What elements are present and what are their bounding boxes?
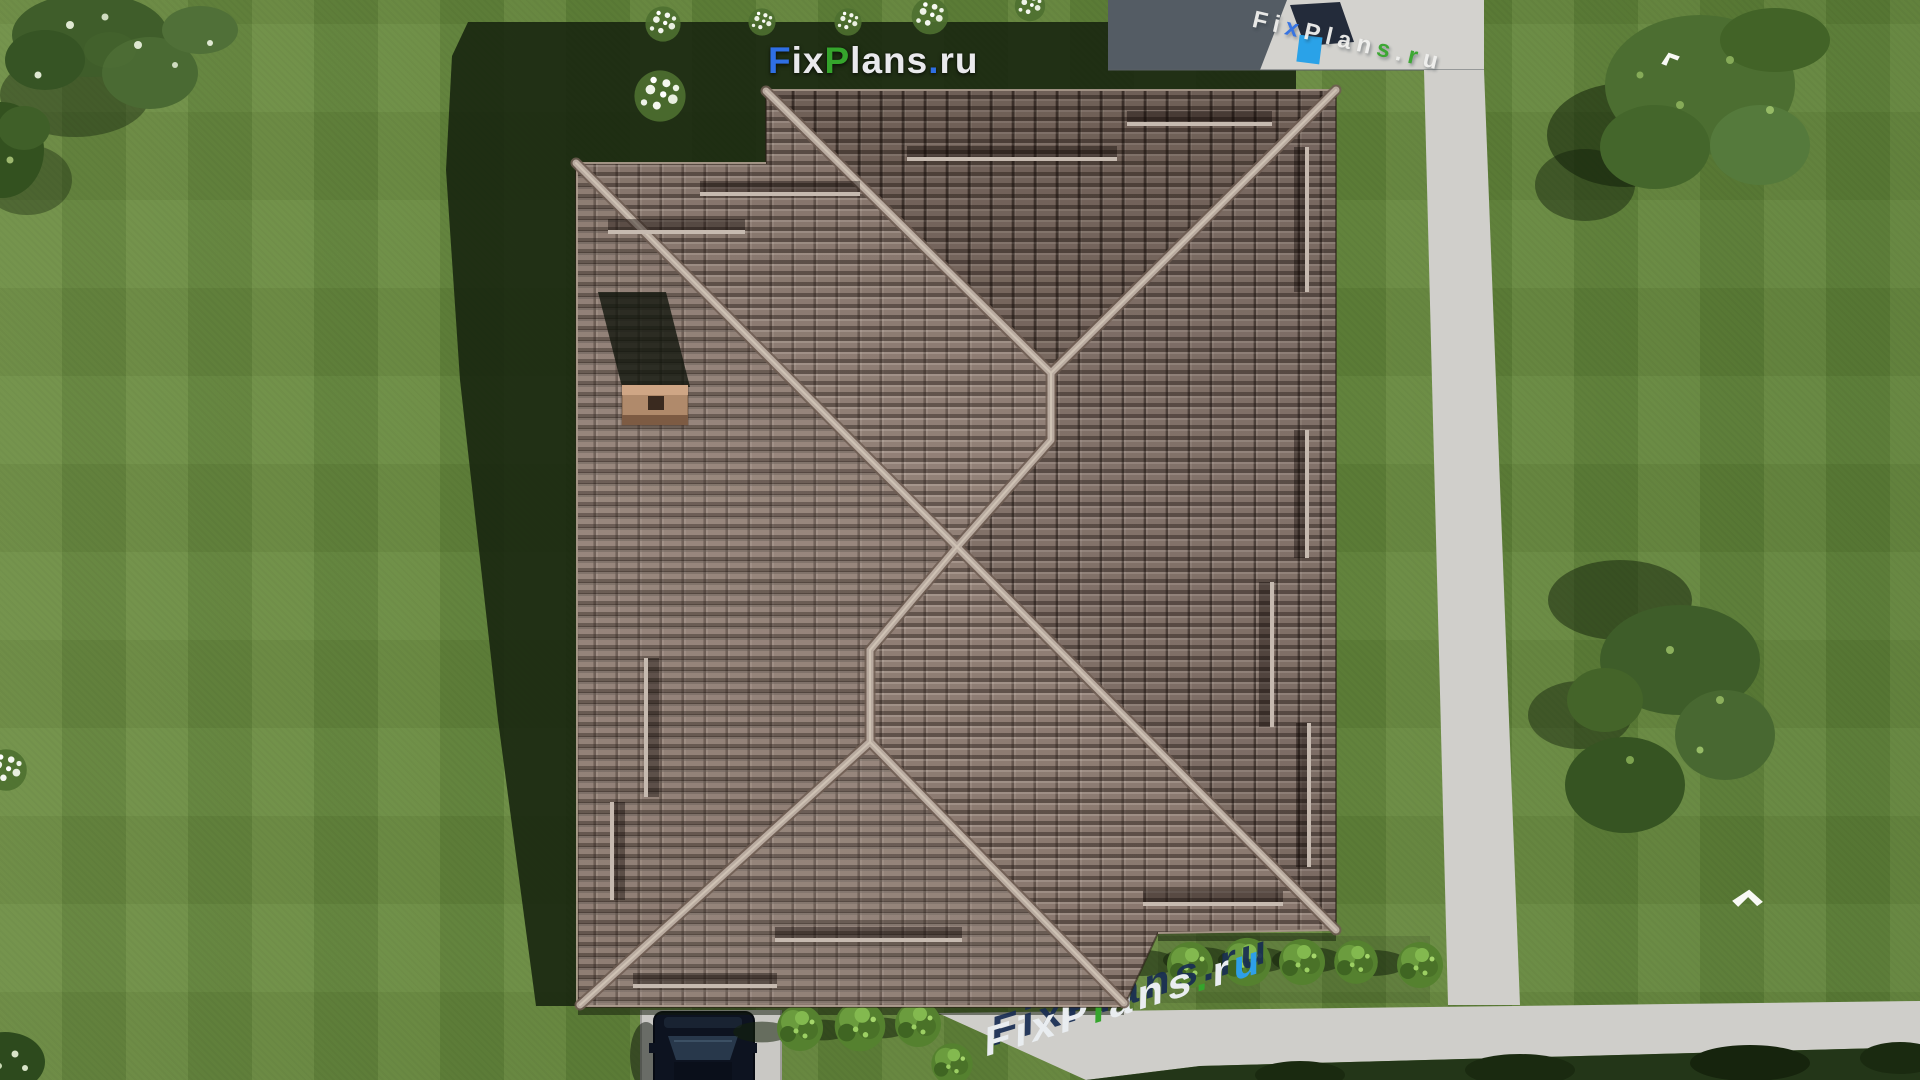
roof-detail-layer [0,0,1920,1080]
snow-guard [610,802,614,900]
watermark-letter: s [907,40,929,81]
snow-guard [633,984,777,988]
watermark-letter: n [883,40,907,81]
snow-guard [1143,902,1283,906]
watermark-letter: F [768,40,792,81]
chimney [622,385,688,425]
snow-guard [1127,122,1272,126]
chimney-flue [648,396,664,410]
watermark-letter: P [824,40,850,81]
watermark-letter: a [861,40,883,81]
aerial-site-render: FixPlans.ru FixPlans.ru FixPlans.ru [0,0,1920,1080]
watermark-letter: x [803,40,825,81]
snow-guard [700,192,860,196]
snow-guard [1270,582,1274,727]
snow-guard [1307,723,1311,867]
watermark-letter: . [928,40,939,81]
snow-guard [775,938,962,942]
snow-guard [644,658,648,797]
watermark-letter: r [939,40,954,81]
chimney-shadow [598,292,690,387]
watermark-fixplans-top: FixPlans.ru [768,40,979,82]
watermark-letter: i [792,40,803,81]
snow-guard [1305,147,1309,292]
snow-guard [907,157,1117,161]
watermark-letter: u [955,40,979,81]
snow-guard [608,230,745,234]
snow-guard [1305,430,1309,558]
watermark-letter: l [850,40,861,81]
